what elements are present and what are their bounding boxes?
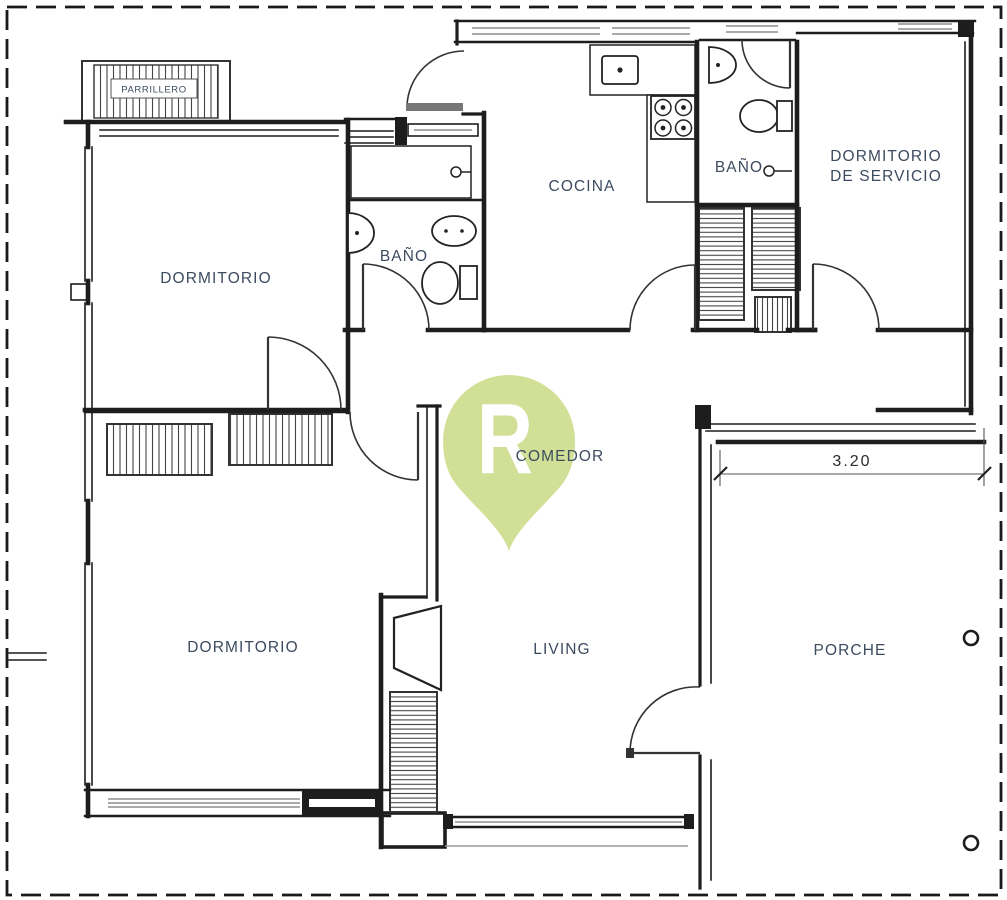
dimension-value: 3.20 <box>832 453 871 470</box>
label-porche: PORCHE <box>814 642 887 659</box>
label-parrillero: PARRILLERO <box>121 85 186 96</box>
label-comedor: COMEDOR <box>516 448 605 465</box>
hall-closet-left <box>699 208 744 320</box>
bedroom2-closet-right <box>229 414 332 465</box>
label-cocina: COCINA <box>549 178 616 195</box>
floor-plan-page: 3.20 R PARRILLERO DORMITORIO BAÑO COCINA… <box>0 0 1007 900</box>
label-living: LIVING <box>533 641 590 658</box>
paper-holder <box>764 166 774 176</box>
toilet-tank <box>777 101 792 131</box>
porch-column <box>964 836 978 850</box>
label-bano-principal: BAÑO <box>380 248 428 265</box>
door-leaf <box>406 103 463 111</box>
label-dormitorio-servicio-line2: DE SERVICIO <box>830 168 942 185</box>
bidet <box>432 216 476 246</box>
chimney <box>382 692 445 847</box>
label-dormitorio-segundo: DORMITORIO <box>187 639 298 656</box>
bathtub-faucet <box>451 167 461 177</box>
label-dormitorio-servicio-line1: DORMITORIO <box>830 148 941 165</box>
label-dormitorio-principal: DORMITORIO <box>160 270 271 287</box>
bedroom2-closet-left <box>107 424 212 475</box>
toilet-tank <box>460 266 477 299</box>
hall-closet-right <box>752 208 800 290</box>
label-bano-servicio: BAÑO <box>715 159 763 176</box>
hall-cabinet-small <box>755 297 791 332</box>
watermark-letter: R <box>477 383 533 495</box>
floor-plan-canvas: 3.20 R PARRILLERO DORMITORIO BAÑO COCINA… <box>0 0 1007 900</box>
porch-column <box>964 631 978 645</box>
toilet <box>422 262 458 304</box>
toilet <box>740 100 778 132</box>
